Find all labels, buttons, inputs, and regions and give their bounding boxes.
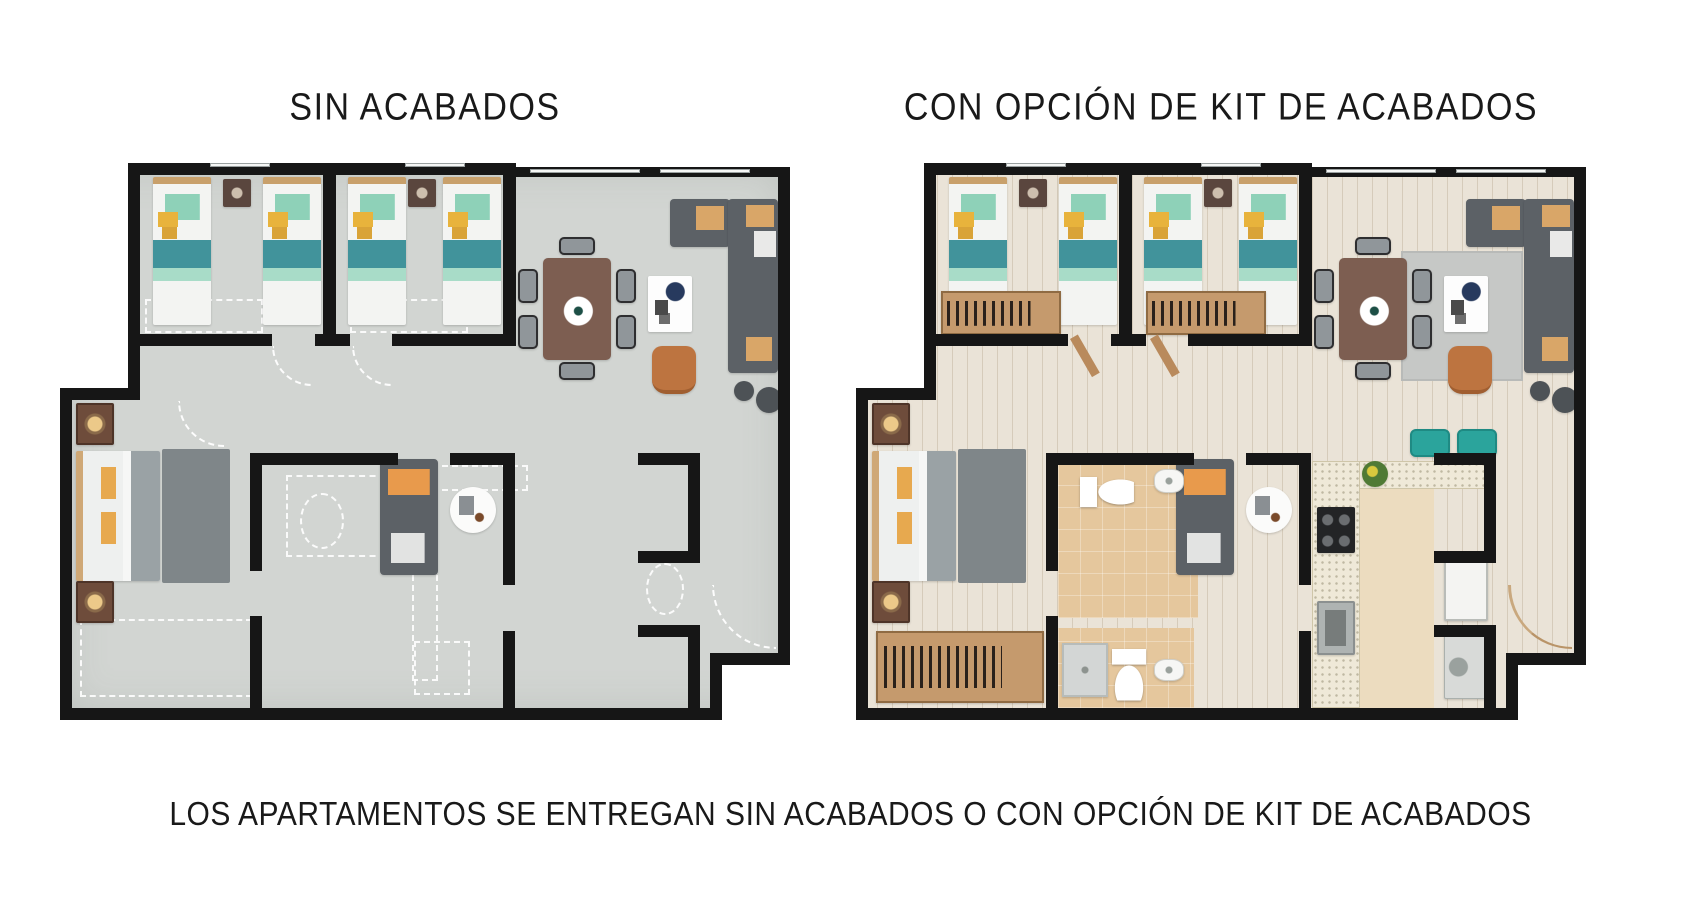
wall-10: [1299, 163, 1312, 346]
wall-15: [1046, 616, 1058, 708]
void-1: [722, 665, 790, 720]
wall-16: [1046, 453, 1194, 465]
dining-chair-3: [1412, 269, 1432, 303]
wall-2: [778, 167, 790, 665]
wall-12: [315, 334, 350, 346]
wall-art-1: [223, 179, 251, 207]
wall-8: [60, 388, 140, 400]
twin-bed-1: [153, 177, 211, 325]
stove: [1317, 507, 1355, 553]
washing-machine: [1444, 635, 1488, 699]
dining-chair-1: [1314, 269, 1334, 303]
dining-chair-4: [1412, 315, 1432, 349]
wall-9: [1119, 163, 1132, 346]
sectional-sofa-side: [728, 199, 778, 373]
toilet-1: [1080, 477, 1134, 507]
wall-9: [323, 163, 336, 346]
wall-11: [936, 334, 1068, 346]
plan-sin-acabados: [60, 163, 790, 720]
side-table-small: [734, 381, 754, 401]
master-bed: [872, 451, 956, 581]
wall-21: [1484, 453, 1496, 563]
wall-3: [710, 653, 790, 665]
twin-bed-4: [443, 177, 501, 325]
window-1: [1456, 169, 1546, 173]
wall-6: [856, 388, 868, 720]
loveseat: [380, 459, 438, 575]
window-3: [1201, 163, 1261, 167]
dining-chair-5: [559, 237, 595, 255]
kitchen-sink: [1317, 601, 1355, 655]
wall-14: [250, 453, 262, 571]
dining-chair-2: [518, 315, 538, 349]
wall-2: [1574, 167, 1586, 665]
bedroom-wardrobe-1: [941, 291, 1061, 335]
counter-plant: [1362, 461, 1388, 487]
sectional-sofa-side: [1524, 199, 1574, 373]
master-rug: [958, 449, 1026, 583]
wall-art-2: [1204, 179, 1232, 207]
round-side-table: [1246, 487, 1292, 533]
wall-art-1: [1019, 179, 1047, 207]
window-1: [660, 169, 750, 173]
coffee-table: [1444, 276, 1488, 332]
wall-24: [1484, 625, 1496, 708]
side-table-small: [1530, 381, 1550, 401]
wall-22: [638, 551, 690, 563]
wall-13: [392, 334, 503, 346]
wall-18: [1299, 453, 1311, 585]
wall-11: [140, 334, 272, 346]
wall-19: [503, 631, 515, 708]
master-bed: [76, 451, 160, 581]
toilet-outline: [300, 493, 344, 549]
sectional-sofa-top: [1466, 199, 1526, 247]
fridge: [1444, 559, 1488, 621]
nightstand-2: [76, 581, 114, 623]
master-rug: [162, 449, 230, 583]
wall-5: [60, 708, 722, 720]
twin-bed-2: [1059, 177, 1117, 325]
master-wardrobe: [876, 631, 1044, 703]
twin-bed-3: [348, 177, 406, 325]
window-0: [530, 169, 640, 173]
nightstand-1: [872, 403, 910, 445]
dining-chair-3: [616, 269, 636, 303]
bathroom-sink-2: [1154, 659, 1184, 681]
wall-18: [503, 453, 515, 585]
wall-21: [688, 453, 700, 563]
dining-chair-1: [518, 269, 538, 303]
master-closet-outline: [80, 619, 252, 697]
wall-16: [250, 453, 398, 465]
window-2: [210, 163, 270, 167]
dining-table: [1339, 258, 1407, 360]
window-0: [1326, 169, 1436, 173]
dining-chair-4: [616, 315, 636, 349]
toilet-2: [1112, 649, 1146, 701]
wall-8: [856, 388, 936, 400]
sectional-sofa-top: [670, 199, 730, 247]
nightstand-2: [872, 581, 910, 623]
wall-22: [1434, 551, 1486, 563]
wall-14: [1046, 453, 1058, 571]
wall-19: [1299, 631, 1311, 708]
wall-13: [1188, 334, 1299, 346]
loveseat: [1176, 459, 1234, 575]
shower: [1062, 643, 1108, 697]
coffee-table: [648, 276, 692, 332]
wall-7: [128, 163, 140, 400]
appliance-outline: [414, 641, 470, 695]
void-1: [1518, 665, 1586, 720]
window-2: [1006, 163, 1066, 167]
wall-24: [688, 625, 700, 708]
wall-10: [503, 163, 516, 346]
bottom-caption: LOS APARTAMENTOS SE ENTREGAN SIN ACABADO…: [0, 796, 1701, 833]
bedroom-wardrobe-2: [1146, 291, 1266, 335]
plan-kit-acabados: [856, 163, 1586, 720]
wall-7: [924, 163, 936, 400]
nook-toilet-outline: [646, 563, 684, 615]
armchair: [652, 346, 696, 394]
round-side-table: [450, 487, 496, 533]
dining-chair-5: [1355, 237, 1391, 255]
wall-art-2: [408, 179, 436, 207]
bathroom-sink-1: [1154, 469, 1184, 493]
dining-table: [543, 258, 611, 360]
kitchen-counter-side: [1312, 461, 1360, 708]
dining-chair-6: [559, 362, 595, 380]
dining-chair-6: [1355, 362, 1391, 380]
nightstand-1: [76, 403, 114, 445]
wall-6: [60, 388, 72, 720]
floor-plan-comparison: SIN ACABADOS CON OPCIÓN DE KIT DE ACABAD…: [0, 0, 1701, 900]
twin-bed-2: [263, 177, 321, 325]
right-plan-title: CON OPCIÓN DE KIT DE ACABADOS: [856, 86, 1586, 130]
dining-chair-2: [1314, 315, 1334, 349]
wall-12: [1111, 334, 1146, 346]
window-3: [405, 163, 465, 167]
armchair: [1448, 346, 1492, 394]
left-plan-title: SIN ACABADOS: [60, 86, 790, 130]
void-0: [60, 163, 128, 388]
wall-15: [250, 616, 262, 708]
wall-5: [856, 708, 1518, 720]
void-0: [856, 163, 924, 388]
wall-3: [1506, 653, 1586, 665]
